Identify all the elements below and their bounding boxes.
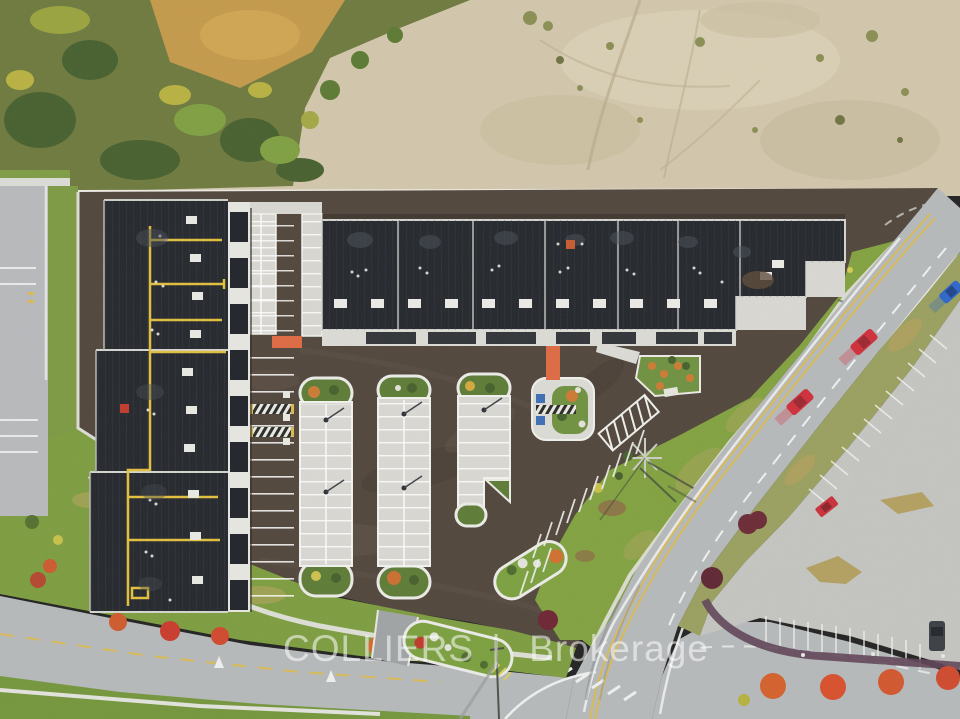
watermark-divider: | — [491, 628, 502, 669]
aerial-photo: COLLIERS | Brokerage — [0, 0, 960, 719]
brokerage-watermark: COLLIERS | Brokerage — [283, 628, 709, 669]
watermark-brand: COLLIERS — [283, 628, 474, 669]
watermark-suffix: Brokerage — [529, 628, 709, 669]
photo-grain — [0, 0, 960, 719]
